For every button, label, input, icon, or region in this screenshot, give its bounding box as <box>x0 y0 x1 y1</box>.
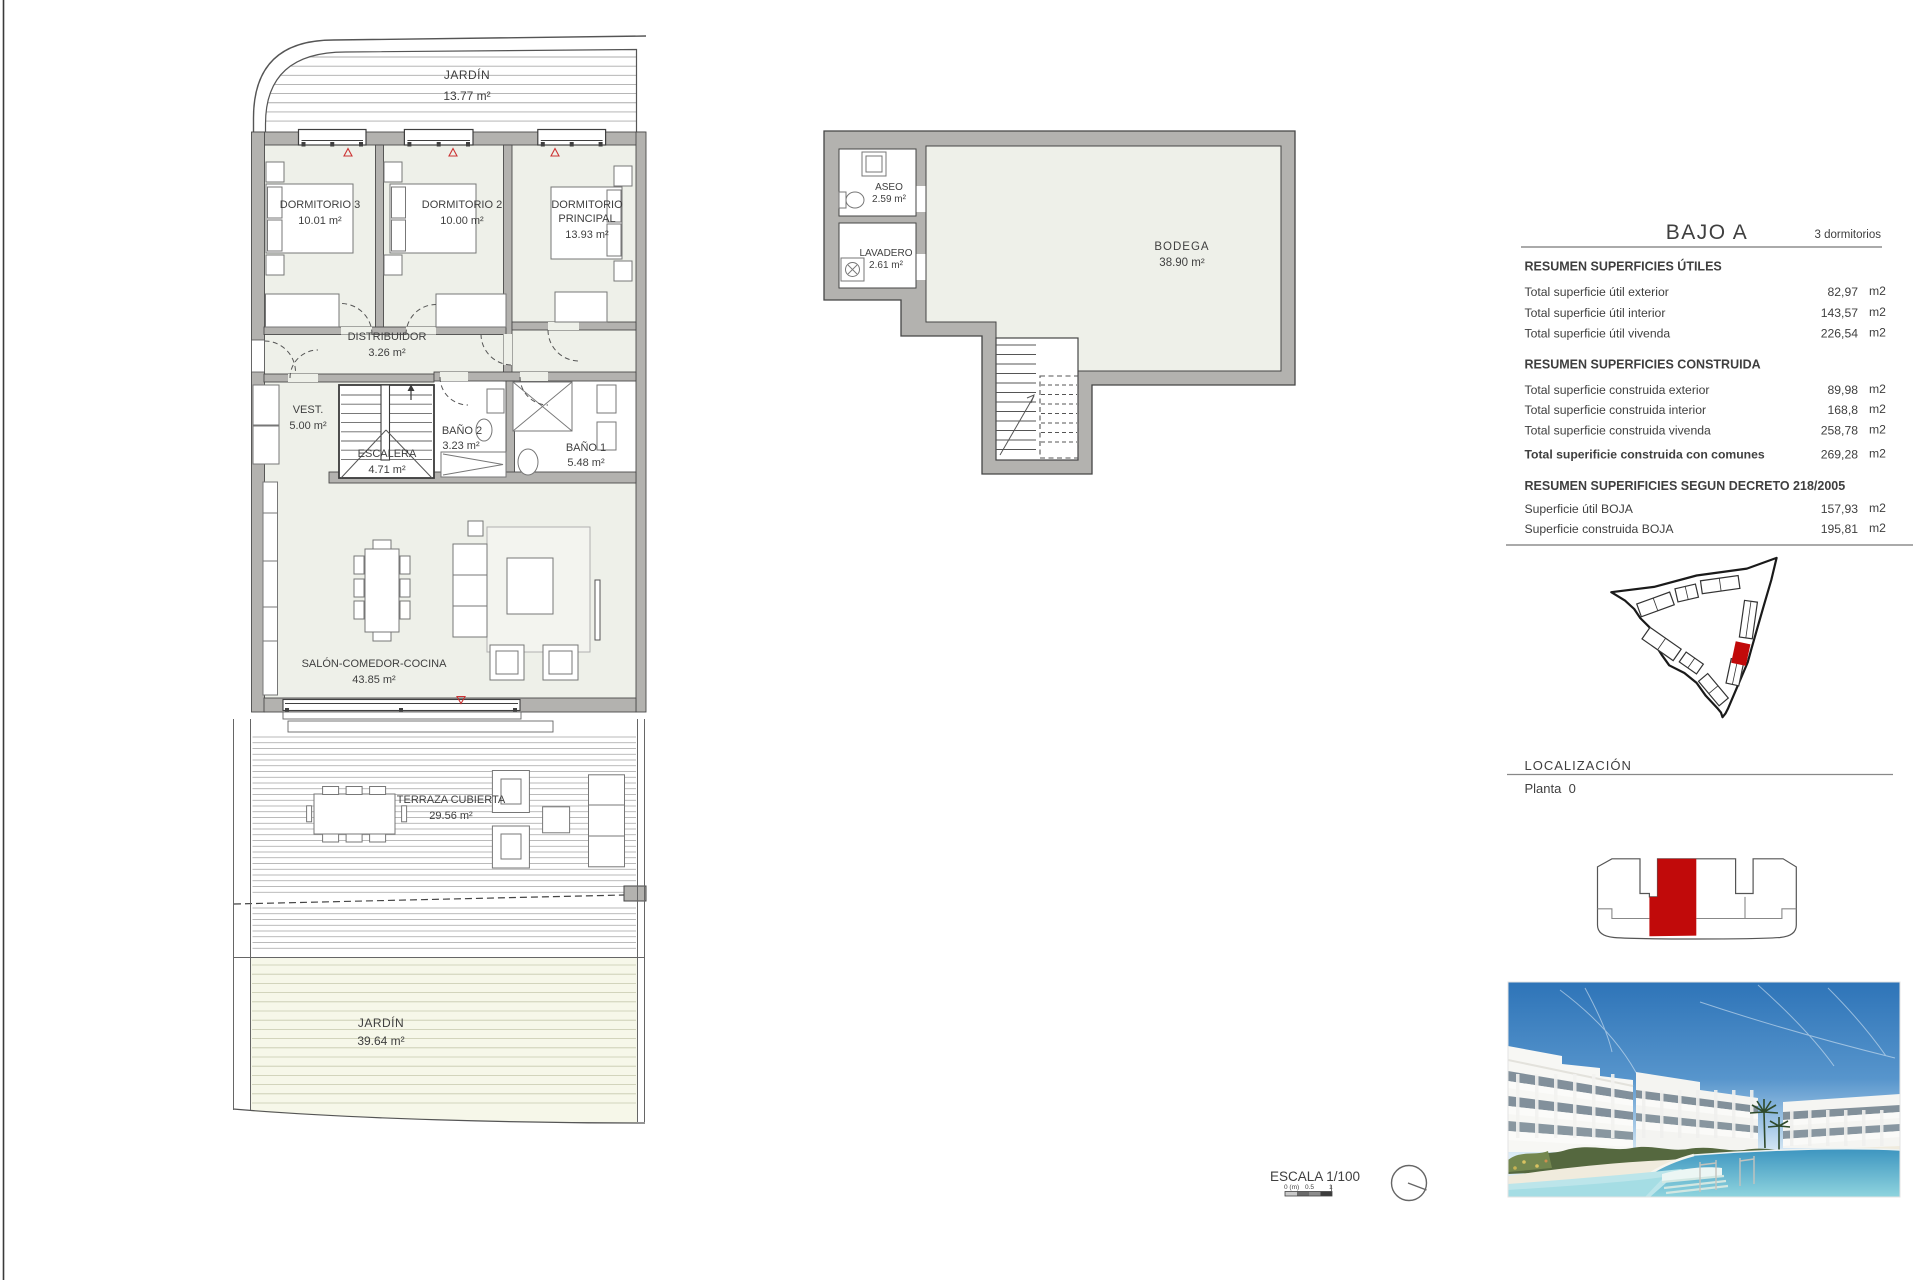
svg-text:1: 1 <box>1329 1184 1333 1191</box>
svg-text:ESCALERA: ESCALERA <box>358 448 417 460</box>
svg-text:m2: m2 <box>1869 326 1886 340</box>
svg-text:m2: m2 <box>1869 501 1886 515</box>
svg-text:Total superficie útil exterior: Total superficie útil exterior <box>1525 285 1669 299</box>
svg-text:TERRAZA CUBIERTA: TERRAZA CUBIERTA <box>397 794 506 806</box>
svg-text:89,98: 89,98 <box>1828 383 1859 397</box>
svg-text:SALÓN-COMEDOR-COCINA: SALÓN-COMEDOR-COCINA <box>302 657 448 670</box>
svg-text:RESUMEN SUPERIFICIES SEGUN DEC: RESUMEN SUPERIFICIES SEGUN DECRETO 218/2… <box>1525 479 1846 493</box>
svg-text:157,93: 157,93 <box>1821 502 1858 516</box>
svg-text:10.00 m²: 10.00 m² <box>440 215 484 227</box>
svg-text:3.23 m²: 3.23 m² <box>442 440 480 452</box>
svg-text:4.71 m²: 4.71 m² <box>368 464 406 476</box>
svg-text:JARDÍN: JARDÍN <box>358 1015 404 1030</box>
svg-text:m2: m2 <box>1869 382 1886 396</box>
svg-text:13.77 m²: 13.77 m² <box>443 89 490 103</box>
svg-text:DORMITORIO: DORMITORIO <box>551 199 623 211</box>
svg-text:2.59 m²: 2.59 m² <box>872 194 907 205</box>
svg-text:JARDÍN: JARDÍN <box>444 67 490 82</box>
svg-text:13.93 m²: 13.93 m² <box>565 229 609 241</box>
svg-text:5.48 m²: 5.48 m² <box>567 457 605 469</box>
svg-text:10.01 m²: 10.01 m² <box>298 215 342 227</box>
svg-text:m2: m2 <box>1869 305 1886 319</box>
svg-text:226,54: 226,54 <box>1821 327 1858 341</box>
svg-text:Total superficie construida in: Total superficie construida interior <box>1525 403 1707 417</box>
svg-text:258,78: 258,78 <box>1821 424 1858 438</box>
svg-text:2.61 m²: 2.61 m² <box>869 260 904 271</box>
svg-text:3.26 m²: 3.26 m² <box>368 347 406 359</box>
svg-text:DORMITORIO 2: DORMITORIO 2 <box>422 199 502 211</box>
svg-text:RESUMEN SUPERFICIES CONSTRUIDA: RESUMEN SUPERFICIES CONSTRUIDA <box>1525 358 1761 372</box>
svg-text:Superficie construida BOJA: Superficie construida BOJA <box>1525 522 1675 536</box>
svg-text:143,57: 143,57 <box>1821 306 1858 320</box>
svg-text:LAVADERO: LAVADERO <box>860 248 913 259</box>
svg-text:DISTRIBUIDOR: DISTRIBUIDOR <box>348 331 427 343</box>
svg-text:Planta 0: Planta 0 <box>1525 781 1576 796</box>
svg-text:Total superficie construida vi: Total superficie construida vivenda <box>1525 424 1712 438</box>
svg-text:m2: m2 <box>1869 521 1886 535</box>
svg-text:BAÑO 1: BAÑO 1 <box>566 441 606 454</box>
svg-text:Total superficie construida ex: Total superficie construida exterior <box>1525 383 1710 397</box>
svg-text:5.00 m²: 5.00 m² <box>289 420 327 432</box>
svg-text:BAJO A: BAJO A <box>1666 221 1749 244</box>
svg-text:0.5: 0.5 <box>1305 1184 1314 1191</box>
svg-text:VEST.: VEST. <box>293 404 324 416</box>
svg-text:3 dormitorios: 3 dormitorios <box>1815 229 1882 241</box>
svg-text:m2: m2 <box>1869 284 1886 298</box>
svg-text:PRINCIPAL: PRINCIPAL <box>558 213 615 225</box>
svg-text:43.85 m²: 43.85 m² <box>352 674 396 686</box>
svg-text:Superficie útil BOJA: Superficie útil BOJA <box>1525 502 1634 516</box>
svg-text:168,8: 168,8 <box>1828 403 1859 417</box>
svg-text:BAÑO 2: BAÑO 2 <box>442 424 482 437</box>
svg-text:ESCALA 1/100: ESCALA 1/100 <box>1270 1169 1360 1184</box>
svg-text:DORMITORIO 3: DORMITORIO 3 <box>280 199 360 211</box>
svg-text:269,28: 269,28 <box>1821 448 1858 462</box>
svg-text:29.56 m²: 29.56 m² <box>429 810 473 822</box>
svg-text:m2: m2 <box>1869 402 1886 416</box>
svg-text:m2: m2 <box>1869 423 1886 437</box>
svg-text:Total superificie construida c: Total superificie construida con comunes <box>1525 448 1765 462</box>
svg-text:195,81: 195,81 <box>1821 522 1858 536</box>
svg-text:Total superficie útil vivenda: Total superficie útil vivenda <box>1525 327 1671 341</box>
svg-text:BODEGA: BODEGA <box>1154 241 1209 253</box>
svg-text:0 (m): 0 (m) <box>1284 1184 1299 1191</box>
svg-text:ASEO: ASEO <box>875 182 903 193</box>
svg-text:LOCALIZACIÓN: LOCALIZACIÓN <box>1525 758 1632 773</box>
svg-text:39.64 m²: 39.64 m² <box>357 1034 404 1048</box>
svg-text:RESUMEN SUPERFICIES ÚTILES: RESUMEN SUPERFICIES ÚTILES <box>1525 259 1722 274</box>
svg-text:Total superficie útil interior: Total superficie útil interior <box>1525 306 1666 320</box>
svg-text:82,97: 82,97 <box>1828 285 1859 299</box>
svg-text:m2: m2 <box>1869 447 1886 461</box>
svg-text:38.90 m²: 38.90 m² <box>1159 257 1205 269</box>
